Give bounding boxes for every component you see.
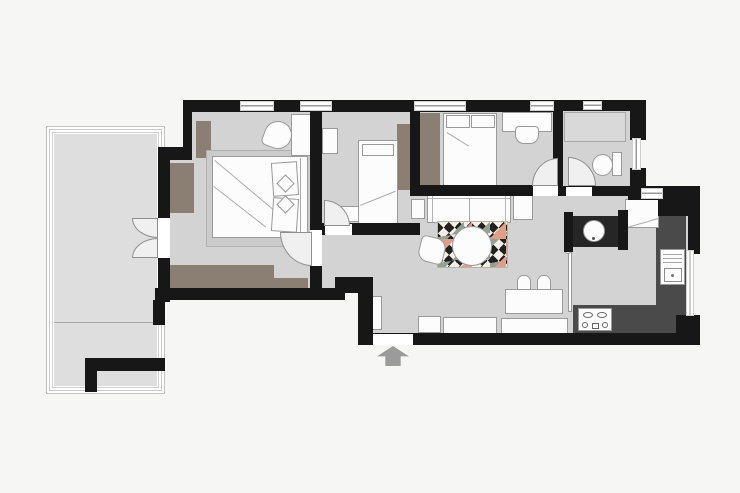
pillow xyxy=(471,115,495,128)
sofa-armrest xyxy=(505,193,510,222)
shelf xyxy=(322,128,338,154)
dining-table xyxy=(505,289,563,314)
drainer-line xyxy=(663,254,682,255)
shower xyxy=(564,112,626,142)
wardrobe xyxy=(168,163,194,213)
bathroom-window xyxy=(583,101,602,110)
wardrobe xyxy=(420,113,440,188)
dining-chair xyxy=(537,275,551,290)
wall-master-middle xyxy=(310,110,322,232)
balcony-divider-line xyxy=(54,322,157,323)
bedside-table xyxy=(291,114,311,156)
toilet-bowl xyxy=(592,154,613,176)
floor-plan xyxy=(0,0,740,493)
bathroom-window xyxy=(632,138,641,170)
sliding-partition xyxy=(568,250,572,312)
burner-square xyxy=(592,323,599,329)
pillow xyxy=(446,115,470,128)
drainer-line xyxy=(663,262,682,263)
sofa-cushion-divider xyxy=(469,199,470,221)
sideboard xyxy=(443,317,497,334)
sofa-armrest xyxy=(428,193,433,222)
sink-drain-dot xyxy=(671,274,674,277)
drainer-line xyxy=(663,258,682,259)
burner xyxy=(582,322,588,328)
toilet-tank xyxy=(612,152,622,176)
burner xyxy=(602,322,608,328)
stove xyxy=(578,308,612,331)
kitchen-window xyxy=(641,188,663,199)
dining-chair xyxy=(517,275,531,290)
sideboard xyxy=(418,316,441,333)
sink xyxy=(660,249,685,285)
wall-kitchen-southeast xyxy=(676,315,700,345)
window xyxy=(414,101,466,111)
desk-chair xyxy=(515,126,539,144)
wall-terrace xyxy=(85,358,165,371)
headboard-line xyxy=(300,158,301,236)
window xyxy=(300,101,332,111)
front-door-opening xyxy=(373,334,413,345)
entrance-arrow xyxy=(377,346,409,366)
wall-basin-stub xyxy=(564,212,573,252)
bedroom2-door-opening xyxy=(533,186,558,196)
shower-divider-line xyxy=(564,141,626,142)
wardrobe xyxy=(167,265,274,289)
wall-kitchen-east xyxy=(688,212,700,254)
burner xyxy=(583,312,593,318)
side-table xyxy=(411,199,425,219)
wall-master-middle xyxy=(310,266,322,300)
round-table xyxy=(452,226,492,266)
wall-left xyxy=(158,158,170,220)
balcony-door-opening xyxy=(156,218,170,258)
wall-top xyxy=(183,100,556,112)
balcony-floor xyxy=(54,134,157,386)
pillow xyxy=(362,144,394,156)
cabinet xyxy=(513,194,533,220)
window xyxy=(530,101,554,111)
washbasin-tap-dot xyxy=(592,237,595,240)
wall-terrace xyxy=(85,358,97,392)
wall-bathroom-east xyxy=(630,100,646,140)
wall-left-lower xyxy=(153,300,165,325)
wall-basin-stub xyxy=(618,210,628,250)
bathroom-door-opening xyxy=(566,187,592,196)
burner xyxy=(597,312,607,318)
sideboard xyxy=(501,318,568,334)
kitchen-window xyxy=(686,250,694,316)
window xyxy=(240,101,274,111)
sofa xyxy=(427,192,511,223)
wall-middle-bedroom2 xyxy=(410,112,420,196)
